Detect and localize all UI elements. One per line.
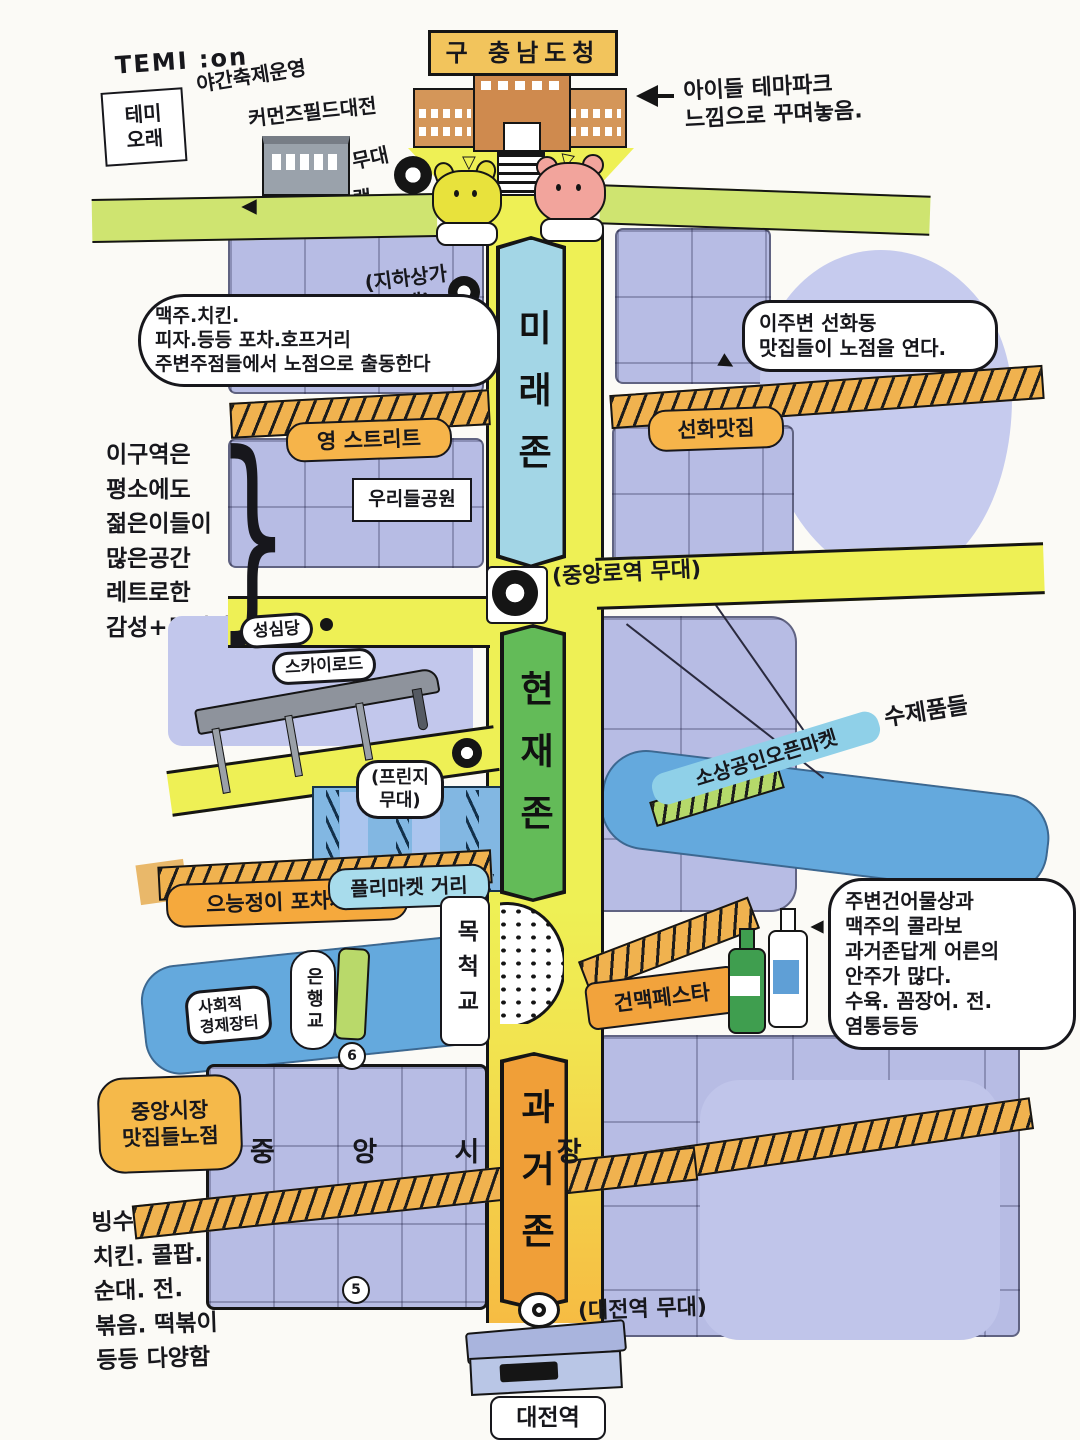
brace-mark: }: [216, 425, 289, 646]
festival-map: TEMI :on 야간축제운영 테미 오래 커먼즈필드대전 무대 체험프로그램 …: [0, 0, 1080, 1440]
adult-note-bubble: 주변건어물상과 맥주의 콜라보 과거존답게 어른의 안주가 많다. 수육. 꼼장…: [828, 878, 1076, 1050]
seonhwa-matjip-pill: 선화맛집: [647, 406, 784, 453]
mascot-eye: [472, 190, 477, 197]
youth-note: 이구역은 평소에도 젊은이들이 많은공간 레트로한 감성+트렌디: [106, 438, 231, 645]
building-window-row: [569, 127, 621, 136]
building-window-row: [569, 109, 621, 118]
daejeon-station-building: [466, 1326, 626, 1400]
bottles-arrow-icon: [810, 920, 823, 933]
zone-future-label: 미래존: [505, 309, 557, 495]
daejeon-stage-label: (대전역 무대): [578, 1294, 708, 1326]
soju-white-bottle-icon: [768, 908, 806, 1026]
exit-number-5: 5: [342, 1276, 370, 1304]
mokcheok-bridge-icon: [500, 902, 564, 1024]
zone-fill: 과거존: [504, 1056, 565, 1307]
building-window-row: [419, 109, 471, 118]
building-center-tower: [473, 74, 571, 152]
pub-note-bubble: 맥주.치킨. 피자.등등 포차.호프거리 주변주점들에서 노점으로 출동한다: [138, 294, 500, 387]
temi-orae-box: 테미 오래: [101, 87, 188, 167]
seonhwa-note-bubble: 이주변 선화동 맛집들이 노점을 연다.: [742, 300, 998, 372]
eunhaeng-bridge-label: 은행교: [290, 950, 336, 1050]
canopy-leg: [211, 728, 230, 794]
stage-word-label: 무대: [350, 142, 391, 174]
tower-window-row: [481, 81, 559, 90]
jungangno-station-icon: [492, 570, 538, 616]
bottle-label: [773, 960, 799, 994]
mascot-pedestal: [436, 222, 498, 246]
stage-dot-icon: [532, 1303, 546, 1317]
eunhaeng-bridge-icon: [334, 947, 371, 1041]
building-wing-left: [413, 88, 481, 148]
market-stalls-bubble: 중앙시장 맛집들노점: [96, 1074, 243, 1175]
building-window-row: [419, 127, 471, 136]
stage-speakers: [272, 154, 340, 170]
mascot-pink-icon: [528, 160, 612, 240]
zone-present-label: 현재존: [507, 670, 559, 856]
mascot-eye: [454, 190, 459, 197]
mascot-pedestal: [540, 218, 604, 242]
urideul-park-box: 우리들공원: [352, 478, 472, 522]
mascot-eye: [556, 184, 561, 191]
social-market-bubble: 사회적 경제장터: [184, 984, 273, 1045]
bottle-label: [730, 976, 760, 996]
skyroad-bubble: 스카이로드: [271, 647, 377, 686]
subway-exit-icon: [394, 156, 432, 194]
old-office-label: 구 충남도청: [446, 38, 601, 68]
subway-exit-icon: [452, 738, 482, 768]
station-body: [469, 1350, 623, 1396]
theme-park-note: 아이들 테마파크 느낌으로 꾸며놓음.: [683, 69, 864, 133]
old-office-banner: 구 충남도청: [428, 30, 618, 76]
sungsimdang-bubble: 성심당: [239, 611, 314, 649]
commons-field-label: 커먼즈필드대전: [247, 93, 378, 131]
daejeon-stage-marker: [518, 1292, 560, 1328]
mascot-body: [534, 162, 606, 224]
mokcheok-bridge-label: 목척교: [440, 896, 490, 1046]
arrow-left-icon: [241, 199, 256, 214]
commons-stage-icon: [262, 136, 350, 196]
old-office-building: [413, 74, 627, 148]
zone-past-banner: 과거존: [500, 1052, 568, 1310]
theme-park-arrow-icon: [636, 85, 658, 107]
jungang-market-label: 중 앙 시 장: [250, 1136, 616, 1170]
theme-park-arrow-stem: [656, 94, 674, 98]
green-strip-left: [92, 193, 438, 243]
young-street-pill: 영 스트리트: [285, 417, 452, 463]
mascot-eye: [576, 184, 581, 191]
daejeon-station-label: 대전역: [490, 1396, 606, 1440]
canopy-leg: [284, 715, 303, 777]
canopy-leg: [355, 702, 373, 761]
bridge-arch: [500, 902, 564, 1024]
fringe-stage-bubble: (프린지 무대): [356, 760, 444, 819]
zone-fill: 현재존: [504, 628, 563, 899]
zone-future-banner: 미래존: [496, 236, 566, 568]
mascot-body: [432, 170, 502, 228]
sungsimdang-dot: [320, 618, 333, 631]
soju-green-bottle-icon: [728, 928, 764, 1032]
zone-past-label: 과거존: [508, 1088, 560, 1274]
station-door: [499, 1361, 558, 1382]
exit-number-6: 6: [338, 1042, 366, 1070]
building-door: [503, 122, 541, 150]
mascot-yellow-icon: [428, 168, 506, 242]
handmade-label: 수제품들: [882, 692, 970, 734]
zone-present-banner: 현재존: [500, 624, 566, 902]
zone-fill: 미래존: [500, 240, 563, 565]
